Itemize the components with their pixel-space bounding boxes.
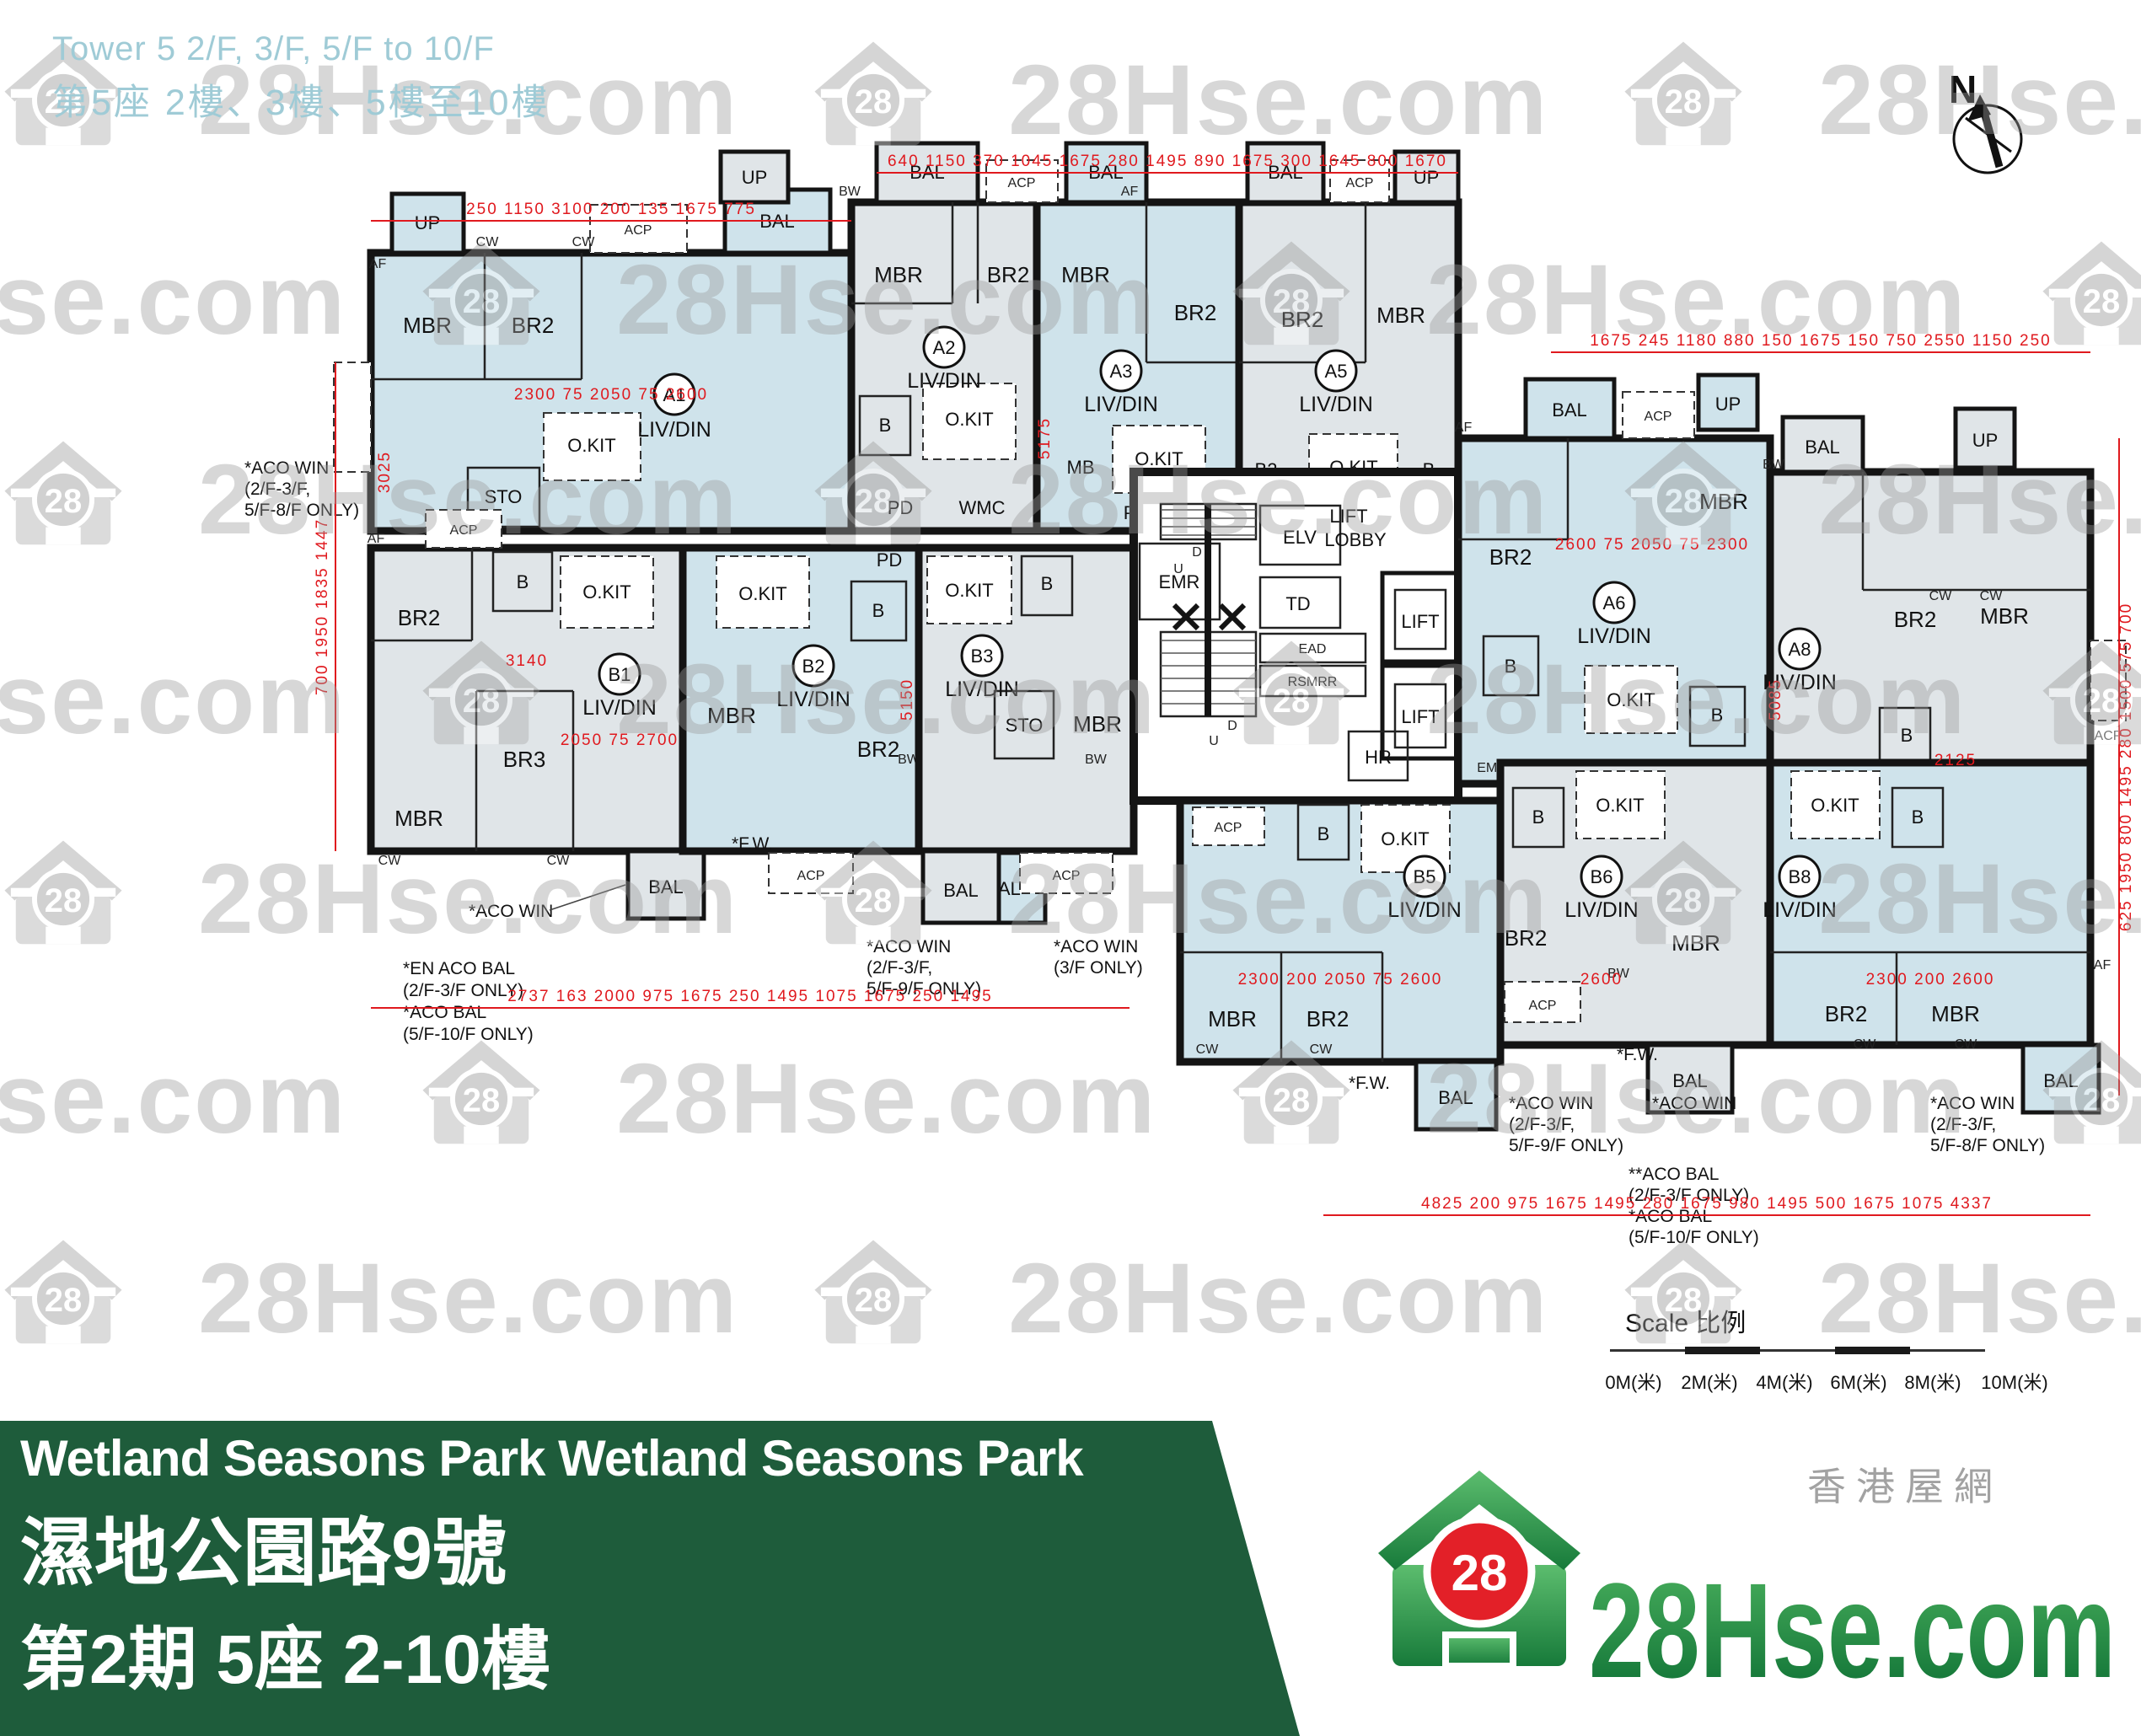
scale-tick: 2M(米): [1681, 1372, 1737, 1393]
room-label-okit: O.KIT: [1381, 828, 1429, 849]
room-label-br2: BR2: [1489, 544, 1532, 570]
unit-id-a5: A5: [1325, 361, 1348, 382]
room-label-sto: STO: [485, 486, 523, 507]
room-label-b: B: [872, 600, 885, 621]
room-label-ead: EAD: [1299, 642, 1327, 656]
unit-b5-block: ACP B O.KIT B5 LIV/DIN MBR BR2 CW CW BAL: [1180, 801, 1500, 1129]
logo-badge-number: 28: [1451, 1545, 1508, 1601]
note-en-aco-bal: *EN ACO BAL: [403, 959, 515, 978]
room-label-b: B: [1532, 806, 1545, 828]
room-label-b: B: [1901, 725, 1913, 746]
room-label-okit: O.KIT: [1135, 448, 1183, 469]
scale-tick: 0M(米): [1605, 1372, 1661, 1393]
room-label-td: TD: [1285, 593, 1310, 614]
room-label-sto: STO: [1006, 715, 1044, 736]
north-label: N: [1949, 67, 1977, 111]
room-label-b: B: [1711, 705, 1724, 726]
unit-livdin-a1: LIV/DIN: [637, 418, 711, 442]
tag-af: AF: [2094, 958, 2111, 972]
room-label-okit: O.KIT: [567, 435, 615, 456]
tag-cw: CW: [1980, 589, 2004, 603]
dim-inner: 3140: [506, 652, 548, 670]
room-label-pd: PD: [888, 497, 914, 518]
stair-u: U: [1209, 734, 1219, 748]
room-label-hr: HR: [1365, 747, 1392, 768]
room-label-acp: ACP: [797, 869, 825, 883]
core-block: EMR D U D U ELV TD EAD RSMRR LIFT LOBBY: [1134, 472, 1458, 801]
scale-tick: 6M(米): [1830, 1372, 1886, 1393]
room-label-okit: O.KIT: [582, 581, 630, 603]
tag-af: AF: [1455, 421, 1473, 435]
room-label-okit: O.KIT: [738, 583, 786, 604]
room-label-br2: BR2: [398, 605, 441, 630]
dim-inner: 2600 75 2050 75 2300: [1555, 536, 1749, 554]
dim-inner: 2050 75 2700: [561, 731, 679, 749]
tag-cw: CW: [476, 235, 500, 249]
north-compass: N: [1949, 67, 2021, 173]
dim-right-top: 1675 245 1180 880 150 1675 150 750 2550 …: [1590, 332, 2052, 350]
dim-inner: 2125: [1934, 752, 1977, 769]
unit-b3-block: O.KIT B STO MBR B3 LIV/DIN BAL ACP BW: [919, 548, 1134, 923]
stair-d: D: [1227, 719, 1237, 733]
room-label-up: UP: [1715, 394, 1741, 415]
note-range: (5/F-10/F ONLY): [1629, 1228, 1759, 1247]
room-label-bal: BAL: [1552, 399, 1587, 421]
room-label-br2: BR2: [1505, 925, 1548, 951]
room-label-mb: MB: [1067, 457, 1095, 478]
room-label-acp: ACP: [625, 223, 652, 238]
dim-inner: 2300 200 2050 75 2600: [1238, 971, 1443, 989]
dim-inner: 3025: [376, 451, 394, 493]
tag-cw: CW: [547, 854, 571, 868]
room-label-b: B: [879, 415, 892, 436]
room-label-bal: BAL: [1672, 1070, 1708, 1091]
unit-id-b5: B5: [1414, 866, 1436, 887]
note-range: 5/F-8/F ONLY): [1930, 1136, 2045, 1155]
footer-title-en: Wetland Seasons Park Wetland Seasons Par…: [20, 1429, 1083, 1487]
room-label-bal: BAL: [1805, 437, 1840, 458]
dim-bottom-left: 2737 163 2000 975 1675 250 1495 1075 167…: [507, 988, 992, 1005]
tag-af: AF: [369, 257, 387, 271]
dim-inner: 5085: [1767, 678, 1784, 721]
dim-inner: 2300 75 2050 75 2600: [514, 386, 708, 404]
room-label-mbr: MBR: [1376, 303, 1425, 328]
note-aco-win: *ACO WIN: [244, 458, 329, 478]
note-aco-win: *ACO WIN: [1054, 937, 1138, 956]
footer-banner: Wetland Seasons Park Wetland Seasons Par…: [0, 1421, 1302, 1736]
footer-address-zh: 濕地公園路9號: [20, 1493, 507, 1600]
note-range: (3/F ONLY): [1054, 958, 1143, 978]
room-label-br2: BR2: [857, 737, 900, 762]
note-range: 5/F-8/F ONLY): [244, 501, 359, 520]
note-range: 5/F-9/F ONLY): [1509, 1136, 1623, 1155]
note-range: (2/F-3/F,: [1930, 1115, 1996, 1134]
room-label-bal: BAL: [1438, 1087, 1473, 1108]
stair-d: D: [1192, 545, 1202, 560]
tag-cw: CW: [1854, 1037, 1877, 1052]
room-label-mbr: MBR: [394, 806, 443, 831]
unit-id-b1: B1: [609, 664, 631, 685]
room-label-rsmrr: RSMRR: [1288, 675, 1338, 689]
room-label-b: B: [1041, 573, 1054, 594]
room-label-mbr: MBR: [1699, 489, 1748, 514]
scale-title: Scale 比例: [1625, 1310, 1746, 1337]
room-label-elv: ELV: [1283, 527, 1317, 548]
note-range: (2/F-3/F,: [867, 958, 932, 978]
unit-id-b3: B3: [971, 646, 994, 667]
dim-right: 625 1950 800 1495 280 1500 575 700: [2117, 603, 2135, 931]
logo-tagline-zh: 香港屋網: [1807, 1465, 2003, 1508]
note-aco-win: *ACO WIN: [867, 937, 951, 956]
room-label-up: UP: [415, 212, 441, 233]
room-label-lift: LIFT: [1401, 611, 1439, 632]
logo-brand-text: 28Hse.com: [1589, 1555, 2116, 1706]
room-label-bal: BAL: [943, 880, 979, 901]
unit-livdin-b3: LIV/DIN: [945, 678, 1019, 701]
unit-a1-block: UP BAL ACP MBR BR2 O.KIT STO A1 LIV/DIN …: [334, 190, 851, 531]
unit-b1-block: ACP BR2 B O.KIT BR3 MBR B1 LIV/DIN BAL C…: [368, 510, 704, 919]
tag-af: AF: [368, 532, 385, 546]
unit-id-a6: A6: [1603, 592, 1626, 613]
room-label-wmc: WMC: [959, 497, 1006, 518]
note-range: (5/F-10/F ONLY): [403, 1025, 534, 1044]
room-label-okit: O.KIT: [1607, 689, 1655, 710]
unit-livdin-b2: LIV/DIN: [776, 688, 850, 711]
site-logo: 28 香港屋網 28Hse.com: [1349, 1424, 2141, 1736]
note-range: (2/F-3/F ONLY): [403, 981, 523, 1000]
room-label-pd: PD: [877, 549, 903, 571]
tag-bw: BW: [1085, 753, 1108, 767]
note-aco-win: *ACO WIN: [1509, 1094, 1593, 1113]
unit-id-a3: A3: [1110, 361, 1133, 382]
note-range: (2/F-3/F,: [244, 480, 310, 499]
unit-livdin-b6: LIV/DIN: [1564, 898, 1639, 922]
unit-livdin-b8: LIV/DIN: [1763, 898, 1837, 922]
room-label-acp: ACP: [1215, 821, 1242, 835]
room-label-up: UP: [1972, 430, 1999, 451]
tag-cw: CW: [1196, 1042, 1220, 1057]
tag-cw: CW: [378, 854, 402, 868]
room-label-okit: O.KIT: [1811, 795, 1859, 816]
dim-top-left: 250 1150 3100 200 135 1675 775: [466, 201, 756, 218]
tag-cw: CW: [1955, 1037, 1978, 1052]
tag-cw: CW: [1310, 1042, 1333, 1057]
unit-livdin-b1: LIV/DIN: [582, 696, 657, 720]
room-label-up: UP: [742, 167, 768, 188]
room-label-okit: O.KIT: [1596, 795, 1644, 816]
tag-cw: CW: [1929, 589, 1953, 603]
room-label-br2: BR2: [1825, 1001, 1868, 1026]
tag-af: AF: [1121, 185, 1139, 199]
footer-phase-zh: 第2期 5座 2-10樓: [20, 1603, 550, 1703]
room-label-b: B: [1912, 806, 1924, 828]
unit-id-b6: B6: [1591, 866, 1613, 887]
note-aco-bal: **ACO BAL: [1629, 1165, 1719, 1184]
dim-top: 640 1150 370 1045 1675 280 1495 890 1675…: [888, 153, 1447, 170]
dim-inner: 2600: [1580, 971, 1623, 989]
stair-u: U: [1173, 562, 1183, 576]
dim-left: 700 1950 1835 1447: [314, 518, 331, 695]
note-aco-win: *ACO WIN: [1930, 1094, 2015, 1113]
unit-a6-block: BAL ACP UP BR2 MBR B O.KIT B A6 LIV/DIN …: [1455, 375, 1770, 784]
room-label-mbr: MBR: [1671, 930, 1720, 956]
room-label-mbr: MBR: [1208, 1006, 1257, 1031]
room-label-mbr: MBR: [874, 262, 923, 287]
room-label-mbr: MBR: [403, 313, 452, 338]
note-aco-win: *ACO WIN: [1652, 1094, 1736, 1113]
room-label-acp: ACP: [1053, 869, 1081, 883]
unit-livdin-a2: LIV/DIN: [907, 369, 981, 393]
dim-inner: 5175: [1036, 417, 1054, 459]
room-label-okit: O.KIT: [945, 409, 993, 430]
logo-house-icon: 28: [1378, 1471, 1580, 1666]
lift-lobby-line1: LIFT: [1329, 506, 1367, 527]
unit-livdin-a3: LIV/DIN: [1084, 393, 1158, 416]
room-label-mbr: MBR: [707, 703, 756, 728]
unit-livdin-a6: LIV/DIN: [1577, 624, 1651, 648]
room-label-bal: BAL: [648, 876, 684, 897]
room-label-acp: ACP: [1008, 176, 1036, 190]
unit-id-a2: A2: [933, 337, 956, 358]
room-label-okit: O.KIT: [945, 580, 993, 601]
room-label-br2: BR2: [1281, 307, 1324, 332]
room-label-b: B: [1317, 823, 1330, 844]
room-label-br2: BR2: [1174, 300, 1217, 325]
unit-b8-block: O.KIT B B8 LIV/DIN BR2 MBR CW CW BAL AF: [1763, 763, 2111, 1112]
dim-inner: 5150: [899, 678, 916, 721]
scale-tick: 4M(米): [1756, 1372, 1812, 1393]
note-aco-win: *ACO WIN: [469, 902, 553, 921]
tag-bw: BW: [1763, 458, 1785, 472]
room-label-b: B: [517, 571, 529, 592]
room-label-br2: BR2: [1894, 607, 1937, 632]
scale-tick: 8M(米): [1904, 1372, 1961, 1393]
room-label-acp: ACP: [1529, 999, 1557, 1013]
room-label-mbr: MBR: [1931, 1001, 1980, 1026]
tag-bw: BW: [839, 185, 861, 199]
unit-id-a8: A8: [1789, 639, 1811, 660]
room-label-mbr: MBR: [1061, 262, 1110, 287]
scale-tick: 10M(米): [1981, 1372, 2047, 1393]
note-range: (2/F-3/F,: [1509, 1115, 1575, 1134]
note-fw: *F.W.: [732, 834, 773, 854]
room-label-lift: LIFT: [1401, 706, 1439, 727]
lift-lobby-line2: LOBBY: [1324, 529, 1387, 550]
tag-cw: CW: [572, 235, 596, 249]
room-label-mbr: MBR: [1073, 711, 1122, 737]
note-fw: *F.W.: [1349, 1074, 1390, 1093]
scale-bar: Scale 比例 0M(米) 2M(米) 4M(米) 6M(米) 8M(米) 1…: [1605, 1310, 2047, 1393]
dim-inner: 2300 200 2600: [1866, 971, 1995, 989]
room-label-br2: BR2: [1307, 1006, 1350, 1031]
room-label-acp: ACP: [1645, 410, 1672, 424]
dim-bottom-right: 4825 200 975 1675 1495 280 1675 980 1495…: [1421, 1195, 1993, 1213]
room-label-br3: BR3: [503, 747, 546, 772]
unit-id-b8: B8: [1789, 866, 1811, 887]
note-aco-bal: *ACO BAL: [403, 1003, 486, 1022]
room-label-acp: ACP: [450, 523, 478, 538]
room-label-mbr: MBR: [1980, 603, 2029, 629]
unit-livdin-b5: LIV/DIN: [1387, 898, 1462, 922]
room-label-bal: BAL: [2043, 1070, 2079, 1091]
unit-livdin-a5: LIV/DIN: [1299, 393, 1373, 416]
room-label-b: B: [1505, 656, 1517, 677]
note-fw: *F.W.: [1617, 1045, 1658, 1064]
room-label-acp: ACP: [1346, 176, 1374, 190]
room-label-br2: BR2: [512, 313, 555, 338]
unit-id-b2: B2: [802, 656, 825, 677]
room-label-br2: BR2: [987, 262, 1030, 287]
